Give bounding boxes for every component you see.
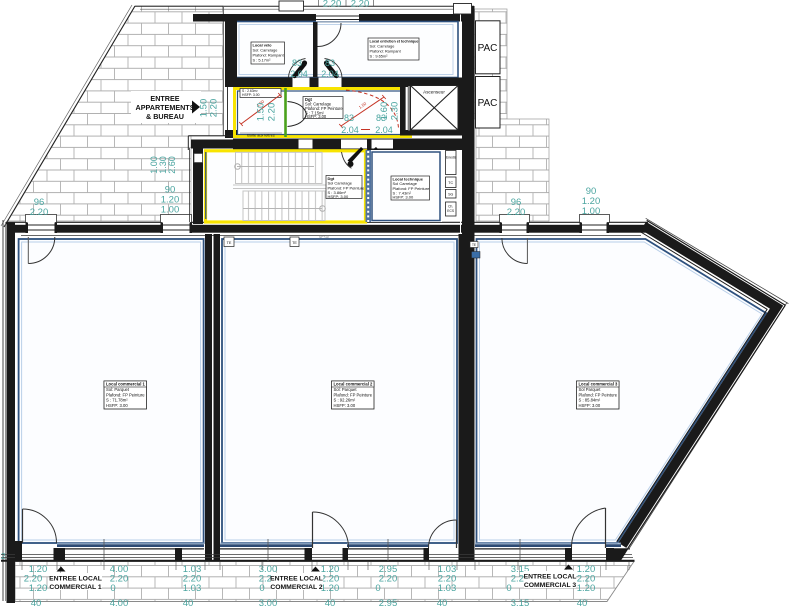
svg-text:2.20: 2.20: [267, 103, 278, 122]
svg-text:HSFP: 3.00: HSFP: 3.00: [305, 114, 327, 119]
svg-text:2.20: 2.20: [507, 207, 526, 218]
svg-text:HSFP: 3.00: HSFP: 3.00: [393, 195, 414, 200]
svg-text:APPARTEMENTS: APPARTEMENTS: [136, 103, 195, 112]
svg-text:ENTREE LOCAL: ENTREE LOCAL: [524, 574, 577, 581]
svg-text:1.03: 1.03: [183, 583, 202, 594]
svg-text:83: 83: [292, 58, 302, 68]
svg-text:3.00: 3.00: [259, 598, 278, 607]
svg-text:Local commercial 2: Local commercial 2: [334, 382, 374, 387]
svg-text:Ascenseur: Ascenseur: [423, 90, 445, 95]
svg-text:40: 40: [437, 598, 448, 607]
svg-text:COMMERCIAL 1: COMMERCIAL 1: [49, 584, 102, 591]
svg-text:83: 83: [344, 113, 354, 123]
svg-text:Ch.: Ch.: [448, 205, 453, 209]
svg-text:TE: TE: [472, 243, 476, 247]
svg-text:40: 40: [31, 598, 42, 607]
svg-text:ECS: ECS: [447, 209, 455, 213]
svg-text:PAC: PAC: [478, 98, 498, 109]
svg-text:40: 40: [325, 598, 336, 607]
svg-text:2.20: 2.20: [351, 0, 370, 10]
svg-text:4.00: 4.00: [110, 598, 129, 607]
svg-text:2.20: 2.20: [209, 99, 220, 118]
svg-text:2.60: 2.60: [167, 156, 177, 174]
svg-text:ENTREE LOCAL: ENTREE LOCAL: [49, 576, 102, 583]
svg-text:2.20: 2.20: [30, 207, 49, 218]
svg-text:HSFP: 3.00: HSFP: 3.00: [328, 194, 349, 199]
svg-text:Local commercial 1: Local commercial 1: [106, 382, 146, 387]
svg-text:2.20: 2.20: [323, 0, 342, 10]
svg-text:2.20: 2.20: [379, 574, 398, 585]
svg-text:SP+10: SP+10: [319, 235, 329, 239]
svg-text:1.20: 1.20: [29, 583, 48, 594]
svg-text:HSFP: 3.00: HSFP: 3.00: [242, 93, 260, 97]
svg-text:2: 2: [1, 552, 6, 561]
svg-text:40: 40: [577, 598, 588, 607]
svg-text:SG: SG: [448, 193, 453, 197]
svg-text:40: 40: [183, 598, 194, 607]
svg-text:S : 5.17m²: S : 5.17m²: [253, 58, 272, 63]
svg-text:2.04: 2.04: [341, 125, 359, 135]
svg-text:2.30: 2.30: [390, 102, 401, 121]
svg-text:PAC: PAC: [478, 43, 498, 54]
svg-text:2.04: 2.04: [321, 69, 339, 79]
svg-text:83: 83: [325, 58, 335, 68]
svg-text:2.04: 2.04: [290, 69, 308, 79]
svg-text:0: 0: [375, 583, 380, 594]
svg-text:ENTREE: ENTREE: [150, 94, 179, 103]
svg-text:1.50: 1.50: [256, 103, 267, 122]
svg-text:0: 0: [110, 583, 115, 594]
svg-text:Enedis: Enedis: [446, 156, 457, 160]
svg-text:TC: TC: [448, 181, 453, 185]
svg-text:HSFP: 3.00: HSFP: 3.00: [334, 403, 356, 408]
svg-text:TE: TE: [292, 241, 297, 245]
svg-text:HSFP: 3.00: HSFP: 3.00: [579, 403, 601, 408]
svg-text:HSFP: 3.00: HSFP: 3.00: [106, 403, 128, 408]
svg-text:1.20: 1.20: [577, 583, 596, 594]
svg-text:0: 0: [259, 583, 264, 594]
svg-text:2.95: 2.95: [379, 598, 398, 607]
svg-text:TE: TE: [227, 241, 232, 245]
svg-text:Local commercial 3: Local commercial 3: [579, 382, 619, 387]
svg-text:1.03: 1.03: [438, 583, 457, 594]
svg-text:& BUREAU: & BUREAU: [146, 112, 184, 121]
svg-text:0: 0: [506, 583, 511, 594]
svg-text:1.20: 1.20: [321, 583, 340, 594]
svg-text:1.00: 1.00: [161, 205, 180, 216]
svg-text:3.15: 3.15: [511, 598, 530, 607]
svg-text:ENTREE LOCAL: ENTREE LOCAL: [270, 576, 323, 583]
svg-text:S : 9.65m²: S : 9.65m²: [370, 54, 389, 59]
svg-text:1.00: 1.00: [582, 206, 601, 217]
svg-text:83: 83: [376, 113, 386, 123]
svg-text:COMMERCIAL 2: COMMERCIAL 2: [270, 584, 323, 591]
svg-text:2.04: 2.04: [375, 125, 393, 135]
svg-text:COMMERCIAL 3: COMMERCIAL 3: [524, 582, 577, 589]
svg-text:Boîte aux lettres: Boîte aux lettres: [247, 134, 275, 138]
